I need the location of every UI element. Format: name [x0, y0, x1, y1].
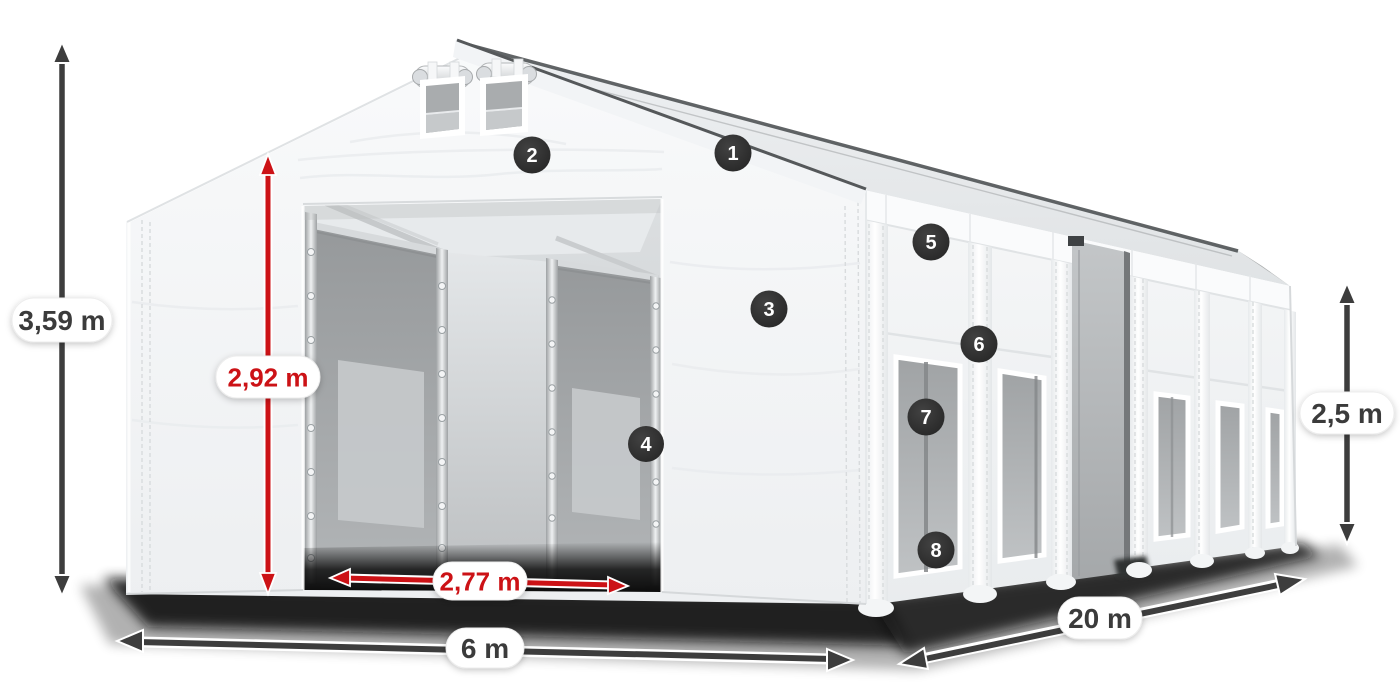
door-trolley: [1068, 236, 1084, 246]
gable-vent: [480, 74, 528, 136]
callout-1[interactable]: 1: [715, 135, 752, 172]
inner-gate-panel-right: [552, 262, 658, 585]
gate-panel-window: [572, 388, 640, 520]
callout-4[interactable]: 4: [628, 426, 664, 462]
side-window: [1218, 403, 1242, 531]
callout-2-number: 2: [526, 145, 537, 167]
dim-side-height: 2,5 m: [1300, 283, 1394, 544]
callout-5[interactable]: 5: [913, 224, 950, 261]
dim-total-height: 3,59 m: [12, 42, 112, 596]
callout-1-number: 1: [727, 143, 738, 165]
dim-entrance-width-label: 2,77 m: [440, 566, 521, 596]
callout-8-number: 8: [930, 540, 941, 562]
tent-dimension-diagram: 3,59 m 2,92 m 2,77 m 6 m 20 m: [0, 0, 1400, 700]
arrowhead-up: [1338, 283, 1356, 304]
gable-vent: [420, 76, 465, 139]
callout-8[interactable]: 8: [918, 532, 955, 569]
callout-4-number: 4: [640, 434, 652, 456]
interior-corridor: [442, 252, 552, 585]
callout-3-number: 3: [763, 299, 774, 321]
callout-7-number: 7: [920, 407, 931, 429]
callout-6[interactable]: 6: [961, 326, 998, 363]
entrance-interior: [300, 195, 666, 595]
arrowhead-up: [53, 42, 71, 63]
callout-3[interactable]: 3: [751, 291, 788, 328]
callout-7[interactable]: 7: [908, 399, 945, 436]
dim-total-height-label: 3,59 m: [18, 305, 105, 336]
dim-entrance-height-label: 2,92 m: [228, 362, 309, 392]
gate-panel-window: [338, 360, 424, 528]
arrowhead-down: [1338, 523, 1356, 544]
callout-2[interactable]: 2: [514, 137, 551, 174]
arrowhead-down: [53, 575, 71, 596]
side-window: [1268, 410, 1282, 526]
callout-6-number: 6: [973, 334, 984, 356]
inner-gate-panel-left: [316, 226, 442, 585]
callout-5-number: 5: [925, 232, 936, 254]
dim-side-height-label: 2,5 m: [1311, 398, 1383, 429]
tent-illustration: 3,59 m 2,92 m 2,77 m 6 m 20 m: [0, 0, 1400, 700]
dim-front-width-label: 6 m: [461, 633, 509, 664]
dim-length-label: 20 m: [1068, 603, 1132, 634]
